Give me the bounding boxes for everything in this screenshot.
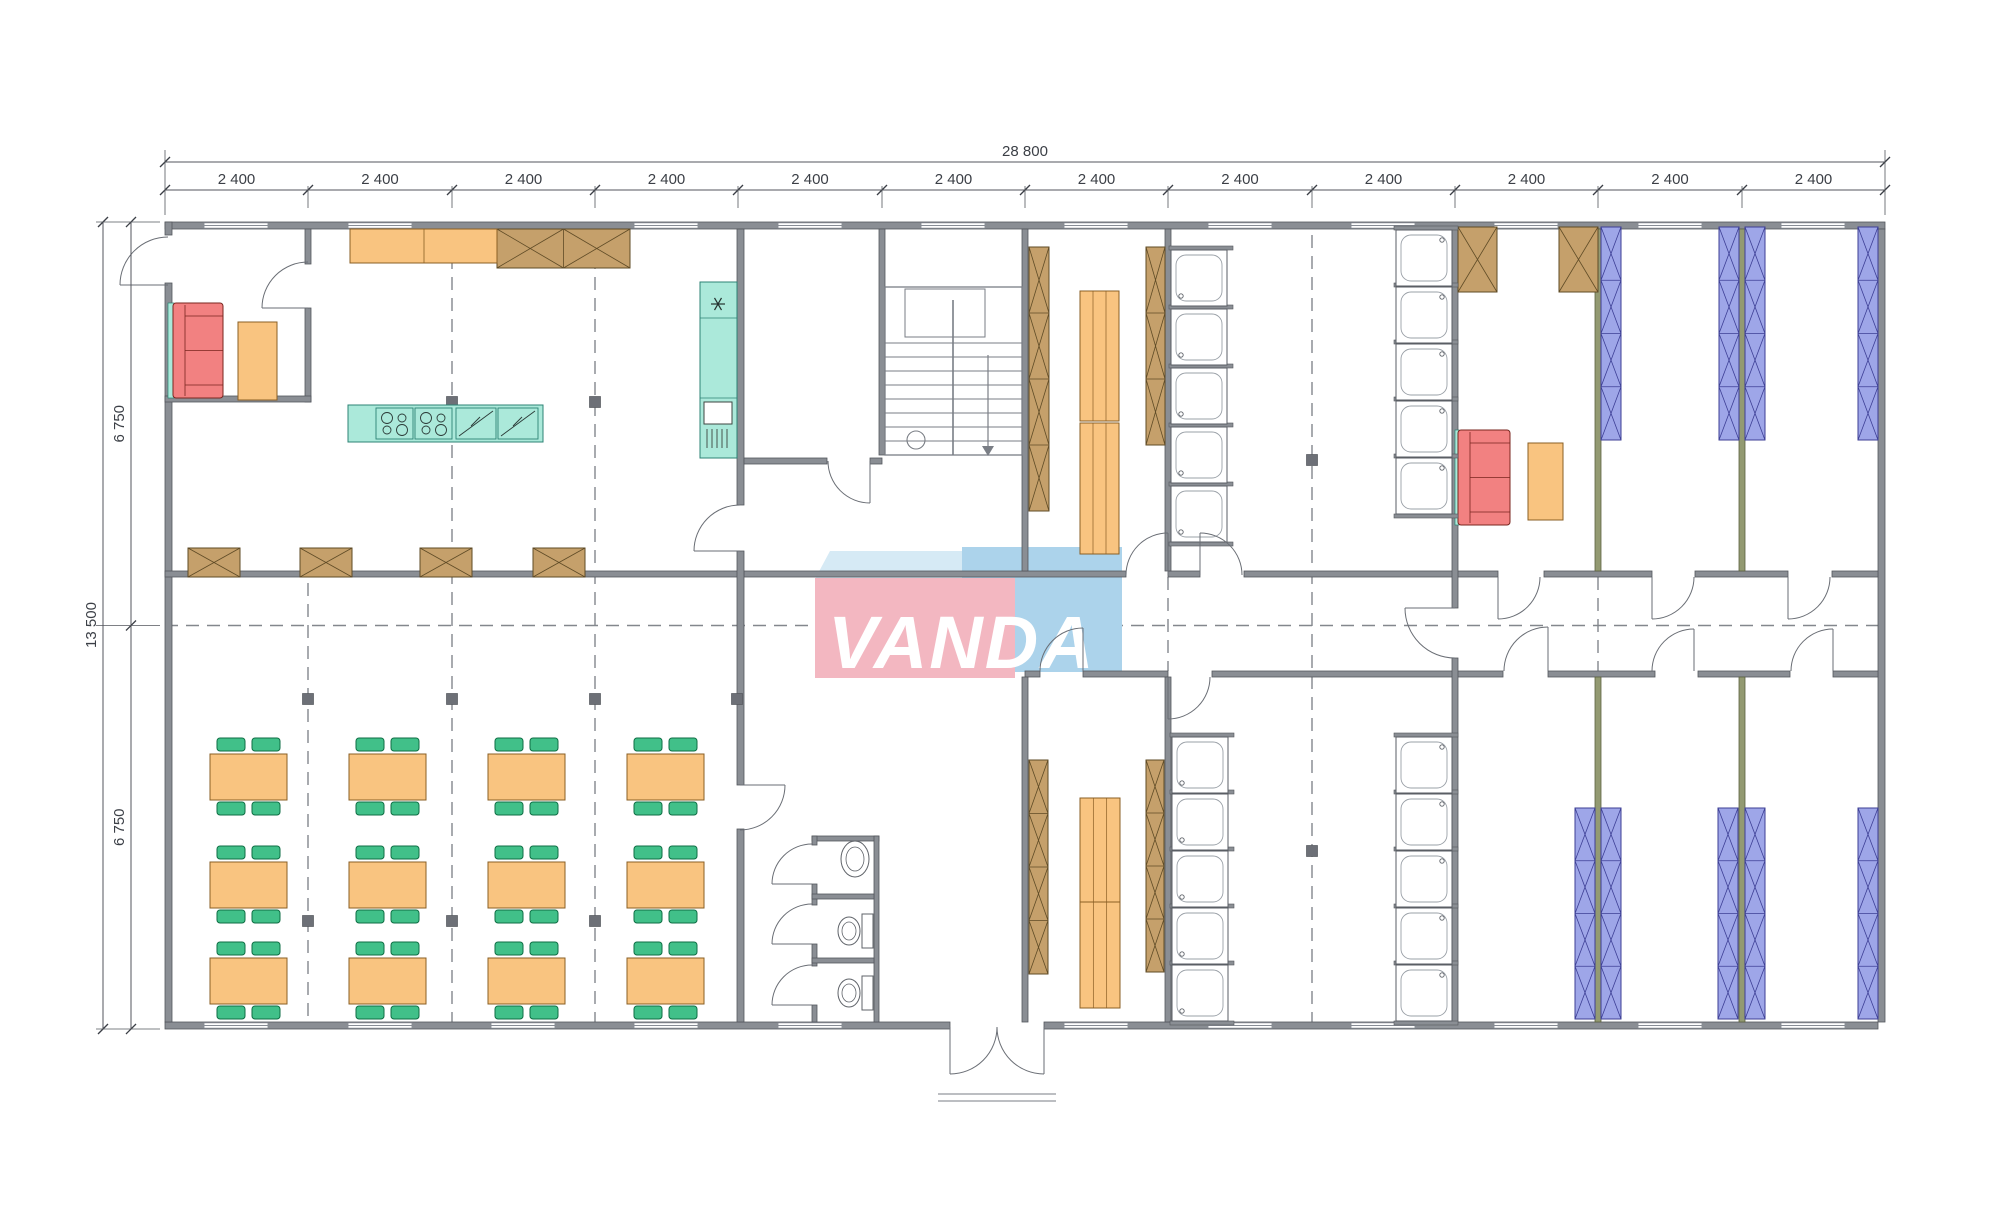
dimension-segment-label: 2 400	[935, 171, 973, 188]
dimension-segment-label: 2 400	[1221, 171, 1259, 188]
dimension-segment-label: 6 750	[111, 405, 128, 443]
dimension-segment-label: 2 400	[648, 171, 686, 188]
dimension-segment-label: 2 400	[1508, 171, 1546, 188]
dimension-segment-label: 6 750	[111, 808, 128, 846]
watermark-group: VANDA	[815, 547, 1122, 684]
dimension-top-total: 28 800	[1002, 143, 1048, 160]
floorplan-svg: VANDA 28 800 13 500 2 4002 4002 4002 400…	[0, 0, 2000, 1216]
watermark-text: VANDA	[828, 601, 1096, 684]
dimension-segment-label: 2 400	[1078, 171, 1116, 188]
dimension-segment-label: 2 400	[361, 171, 399, 188]
dimension-segment-label: 2 400	[505, 171, 543, 188]
stairs-group	[885, 287, 1022, 456]
dimension-left-total: 13 500	[83, 602, 100, 648]
floorplan-page: VANDA 28 800 13 500 2 4002 4002 4002 400…	[0, 0, 2000, 1216]
dimension-segment-label: 2 400	[1651, 171, 1689, 188]
dimension-segment-label: 2 400	[218, 171, 256, 188]
dimension-segment-label: 2 400	[791, 171, 829, 188]
dimension-segment-label: 2 400	[1365, 171, 1403, 188]
dimension-segment-label: 2 400	[1795, 171, 1833, 188]
